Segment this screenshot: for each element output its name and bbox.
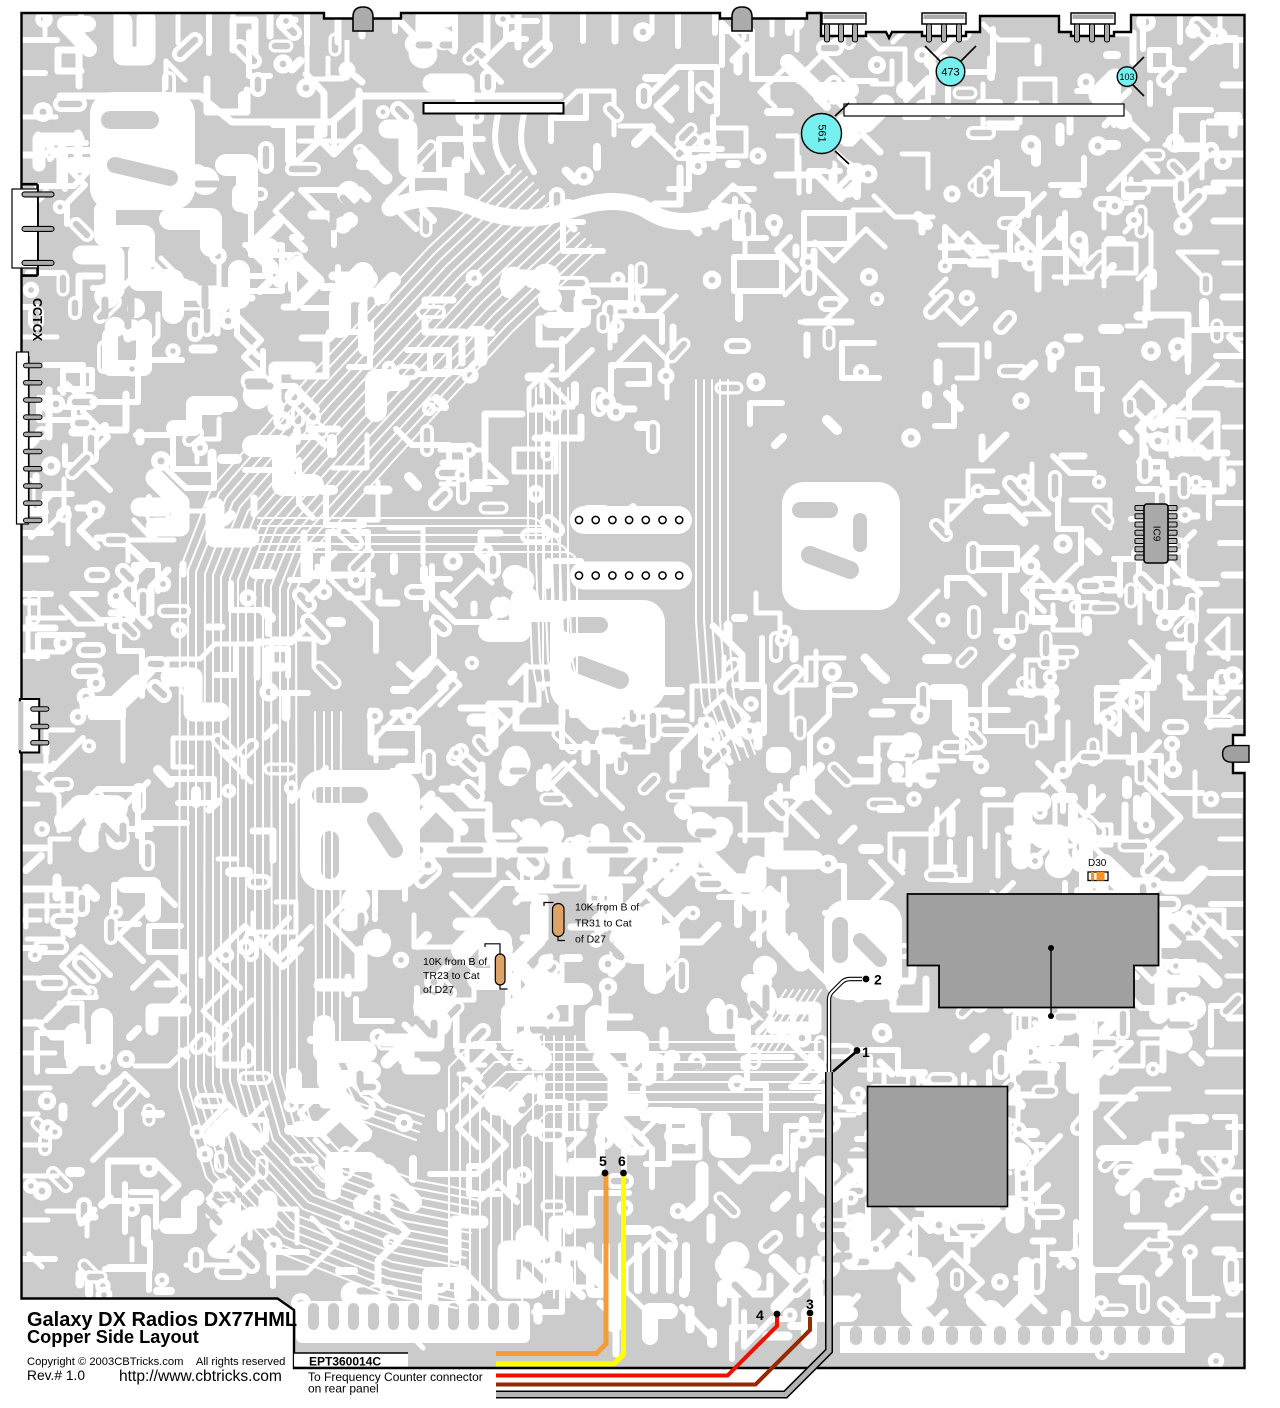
svg-text:1: 1 bbox=[862, 1044, 870, 1060]
svg-text:on rear panel: on rear panel bbox=[308, 1382, 379, 1396]
svg-text:10K from B of: 10K from B of bbox=[423, 956, 487, 968]
svg-text:http://www.cbtricks.com: http://www.cbtricks.com bbox=[119, 1368, 282, 1385]
svg-text:TR23 to Cat: TR23 to Cat bbox=[423, 970, 480, 982]
svg-text:EPT360014C: EPT360014C bbox=[309, 1355, 381, 1369]
svg-text:4: 4 bbox=[756, 1307, 764, 1323]
svg-text:of D27: of D27 bbox=[575, 934, 606, 946]
svg-text:of D27: of D27 bbox=[423, 984, 454, 996]
svg-text:5: 5 bbox=[599, 1153, 607, 1169]
svg-text:IC9: IC9 bbox=[1151, 526, 1162, 542]
svg-text:CCTCX: CCTCX bbox=[30, 298, 44, 342]
svg-text:103: 103 bbox=[1119, 72, 1134, 82]
svg-text:Copyright © 2003CBTricks.com: Copyright © 2003CBTricks.com All rights … bbox=[27, 1356, 285, 1368]
svg-text:TR31 to Cat: TR31 to Cat bbox=[575, 918, 632, 930]
svg-text:10K from B of: 10K from B of bbox=[575, 902, 639, 914]
svg-text:6: 6 bbox=[618, 1153, 626, 1169]
svg-text:2: 2 bbox=[874, 972, 882, 988]
svg-text:Rev.# 1.0: Rev.# 1.0 bbox=[27, 1368, 85, 1383]
svg-text:561: 561 bbox=[816, 124, 828, 142]
svg-text:3: 3 bbox=[806, 1296, 814, 1312]
svg-text:D30: D30 bbox=[1088, 858, 1107, 869]
svg-text:Copper Side Layout: Copper Side Layout bbox=[27, 1327, 199, 1347]
svg-text:473: 473 bbox=[941, 67, 959, 79]
